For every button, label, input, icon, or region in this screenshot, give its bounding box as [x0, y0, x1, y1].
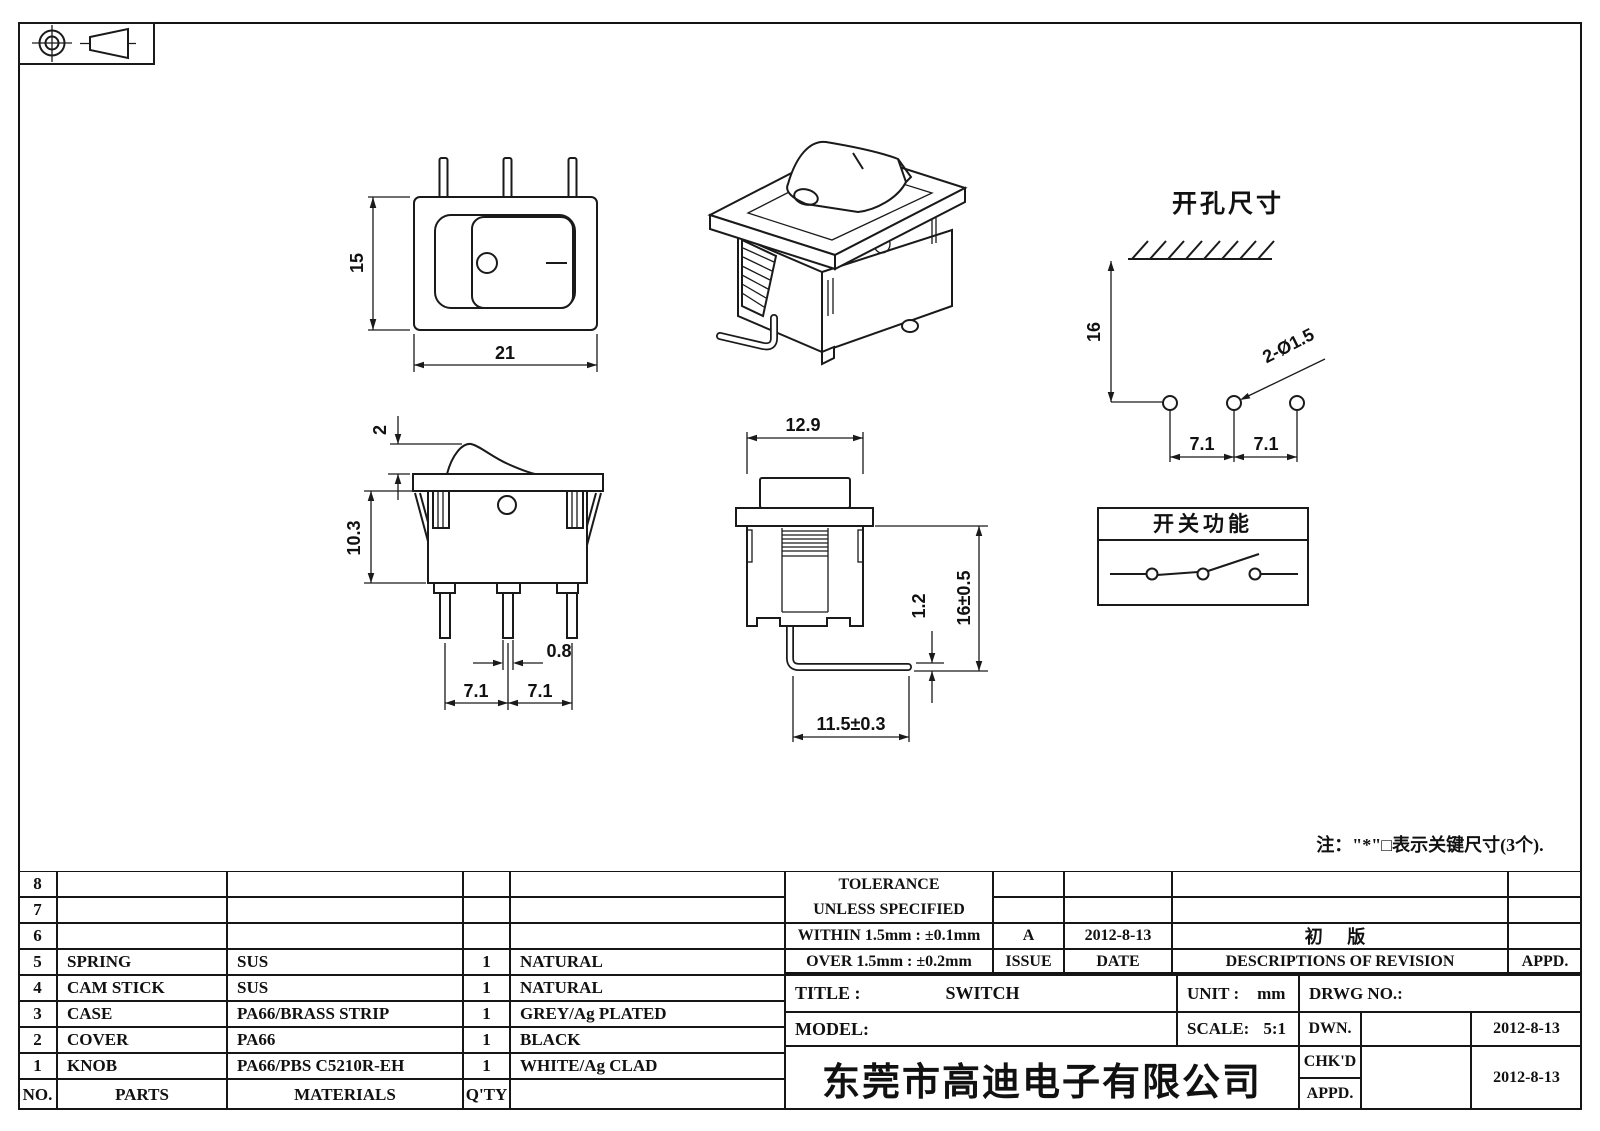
- bom-header-no: NO.: [18, 1079, 57, 1110]
- dim-body-height-10-3: 10.3: [344, 491, 426, 583]
- dim-height-15: 15: [347, 197, 410, 330]
- bom-part: [57, 871, 227, 897]
- svg-text:1.2: 1.2: [909, 593, 929, 618]
- bom-no: 1: [18, 1053, 57, 1079]
- dim-width-12-9: 12.9: [747, 415, 863, 474]
- chkd-signature-cell: [1361, 1046, 1471, 1110]
- scale-label: SCALE:: [1187, 1019, 1249, 1039]
- revision-issue-value: A: [993, 923, 1064, 949]
- bom-material: [227, 923, 463, 949]
- svg-text:2: 2: [370, 425, 390, 435]
- end-flange: [736, 508, 873, 526]
- chkd-label-cell: CHK'D: [1299, 1046, 1361, 1078]
- rocker-profile-curve: [447, 444, 535, 474]
- end-body: [747, 526, 863, 626]
- scale-cell: SCALE: 5:1: [1177, 1012, 1299, 1046]
- svg-text:0.8: 0.8: [546, 641, 571, 661]
- end-view: 12.9 16±0.5 1.2 11.5±0.3: [690, 390, 1020, 750]
- revision-empty-cell: [1064, 897, 1172, 923]
- revision-empty-cell: [993, 897, 1064, 923]
- svg-text:2-Ø1.5: 2-Ø1.5: [1259, 324, 1317, 367]
- bom-part: [57, 897, 227, 923]
- key-dimension-note: 注："*"□表示关键尺寸(3个).: [1285, 831, 1575, 857]
- svg-text:16: 16: [1084, 322, 1104, 342]
- tolerance-header: TOLERANCE UNLESS SPECIFIED: [785, 871, 993, 923]
- dim-hole-pitch: 7.1 7.1: [1170, 411, 1297, 462]
- side-body: [428, 491, 587, 583]
- function-box: 开关功能: [1060, 480, 1340, 620]
- company-name: 东莞市高迪电子有限公司: [785, 1046, 1299, 1110]
- bom-header-parts: PARTS: [57, 1079, 227, 1110]
- bom-part: KNOB: [57, 1053, 227, 1079]
- revision-appd-value: [1508, 923, 1582, 949]
- dim-pin-width-0-8: 0.8: [473, 640, 572, 670]
- cutout-holes: [1163, 396, 1304, 410]
- panel-surface-hatch: [1128, 241, 1274, 259]
- bom-part: [57, 923, 227, 949]
- bom-no: 4: [18, 975, 57, 1001]
- cutout-title: 开孔尺寸: [1172, 190, 1284, 218]
- unit-label: UNIT :: [1187, 984, 1239, 1004]
- bom-qty: [463, 923, 510, 949]
- svg-text:7.1: 7.1: [1189, 434, 1214, 454]
- bom-finish: [510, 871, 785, 897]
- bom-qty: 1: [463, 1027, 510, 1053]
- revision-empty-cell: [993, 871, 1064, 897]
- front-view-pins: [440, 158, 577, 200]
- function-title: 开关功能: [1153, 512, 1253, 536]
- bom-no: 5: [18, 949, 57, 975]
- projection-symbol-box: [18, 22, 155, 65]
- model-cell: MODEL:: [785, 1012, 1177, 1046]
- side-flange: [413, 474, 603, 491]
- dim-width-21: 21: [414, 334, 597, 372]
- unit-value: mm: [1257, 984, 1285, 1004]
- bom-part: SPRING: [57, 949, 227, 975]
- cutout-view: 开孔尺寸 16 2-Ø1.5: [1040, 170, 1460, 465]
- bom-part: CAM STICK: [57, 975, 227, 1001]
- bom-material: [227, 871, 463, 897]
- dwn-date-cell: 2012-8-13: [1471, 1012, 1582, 1046]
- bom-qty: [463, 897, 510, 923]
- truncated-cone-icon: [80, 29, 136, 58]
- unit-cell: UNIT : mm: [1177, 975, 1299, 1012]
- first-angle-circle-icon: [32, 25, 72, 62]
- spdt-schematic-icon: [1110, 554, 1298, 580]
- bom-no: 2: [18, 1027, 57, 1053]
- bom-header-materials: MATERIALS: [227, 1079, 463, 1110]
- bom-material: SUS: [227, 975, 463, 1001]
- svg-text:16±0.5: 16±0.5: [954, 571, 974, 626]
- revision-date-value: 2012-8-13: [1064, 923, 1172, 949]
- tolerance-line2: UNLESS SPECIFIED: [813, 897, 965, 922]
- bom-qty: 1: [463, 1053, 510, 1079]
- bom-no: 6: [18, 923, 57, 949]
- bom-material: SUS: [227, 949, 463, 975]
- side-view: 2 10.3 0.8 7: [340, 400, 640, 720]
- revision-empty-cell: [1172, 897, 1508, 923]
- bom-material: PA66/BRASS STRIP: [227, 1001, 463, 1027]
- bom-qty: 1: [463, 949, 510, 975]
- revision-empty-cell: [1172, 871, 1508, 897]
- end-bent-pin: [790, 622, 908, 667]
- dim-depth-16: 16: [1084, 261, 1162, 402]
- svg-text:15: 15: [347, 253, 367, 273]
- appd-label-cell: APPD.: [1299, 1078, 1361, 1110]
- svg-text:21: 21: [495, 343, 515, 363]
- dwn-signature-cell: [1361, 1012, 1471, 1046]
- front-view: 15 21: [340, 120, 670, 380]
- title-label: TITLE :: [795, 983, 861, 1004]
- bom-material: PA66: [227, 1027, 463, 1053]
- dwn-label-cell: DWN.: [1299, 1012, 1361, 1046]
- hole-callout: 2-Ø1.5: [1240, 324, 1325, 400]
- isometric-view: [670, 120, 990, 370]
- tolerance-line1: TOLERANCE: [838, 872, 939, 897]
- side-pins: [434, 583, 578, 638]
- end-knob: [760, 478, 850, 508]
- bom-material: [227, 897, 463, 923]
- svg-text:7.1: 7.1: [527, 681, 552, 701]
- revision-empty-cell: [1508, 897, 1582, 923]
- dim-pin-thickness-1-2: 1.2: [909, 593, 944, 703]
- bom-part: COVER: [57, 1027, 227, 1053]
- chkd-date-cell: 2012-8-13: [1471, 1046, 1582, 1110]
- bom-finish: NATURAL: [510, 949, 785, 975]
- bom-no: 3: [18, 1001, 57, 1027]
- bom-no: 8: [18, 871, 57, 897]
- bom-finish: WHITE/Ag CLAD: [510, 1053, 785, 1079]
- bom-finish: GREY/Ag PLATED: [510, 1001, 785, 1027]
- bom-part: CASE: [57, 1001, 227, 1027]
- dim-pin-length-11-5: 11.5±0.3: [793, 676, 909, 742]
- svg-text:10.3: 10.3: [344, 520, 364, 555]
- bom-finish: [510, 897, 785, 923]
- revision-description-value: 初 版: [1172, 923, 1508, 949]
- bom-qty: 1: [463, 1001, 510, 1027]
- bom-qty: 1: [463, 975, 510, 1001]
- bom-finish: BLACK: [510, 1027, 785, 1053]
- svg-text:12.9: 12.9: [785, 415, 820, 435]
- bom-no: 7: [18, 897, 57, 923]
- scale-value: 5:1: [1263, 1019, 1286, 1039]
- svg-text:11.5±0.3: 11.5±0.3: [817, 714, 886, 734]
- svg-text:7.1: 7.1: [463, 681, 488, 701]
- bom-finish: [510, 923, 785, 949]
- title-value: SWITCH: [946, 983, 1020, 1004]
- bom-header-qty: Q'TY: [463, 1079, 510, 1110]
- bom-finish: NATURAL: [510, 975, 785, 1001]
- title-cell: TITLE : SWITCH: [785, 975, 1177, 1012]
- bom-header-finish: [510, 1079, 785, 1110]
- tolerance-within: WITHIN 1.5mm : ±0.1mm: [785, 923, 993, 949]
- revision-empty-cell: [1064, 871, 1172, 897]
- svg-text:7.1: 7.1: [1253, 434, 1278, 454]
- bom-qty: [463, 871, 510, 897]
- revision-empty-cell: [1508, 871, 1582, 897]
- drwg-no-cell: DRWG NO.:: [1299, 975, 1582, 1012]
- drawing-sheet: 15 21: [0, 0, 1600, 1131]
- bom-material: PA66/PBS C5210R-EH: [227, 1053, 463, 1079]
